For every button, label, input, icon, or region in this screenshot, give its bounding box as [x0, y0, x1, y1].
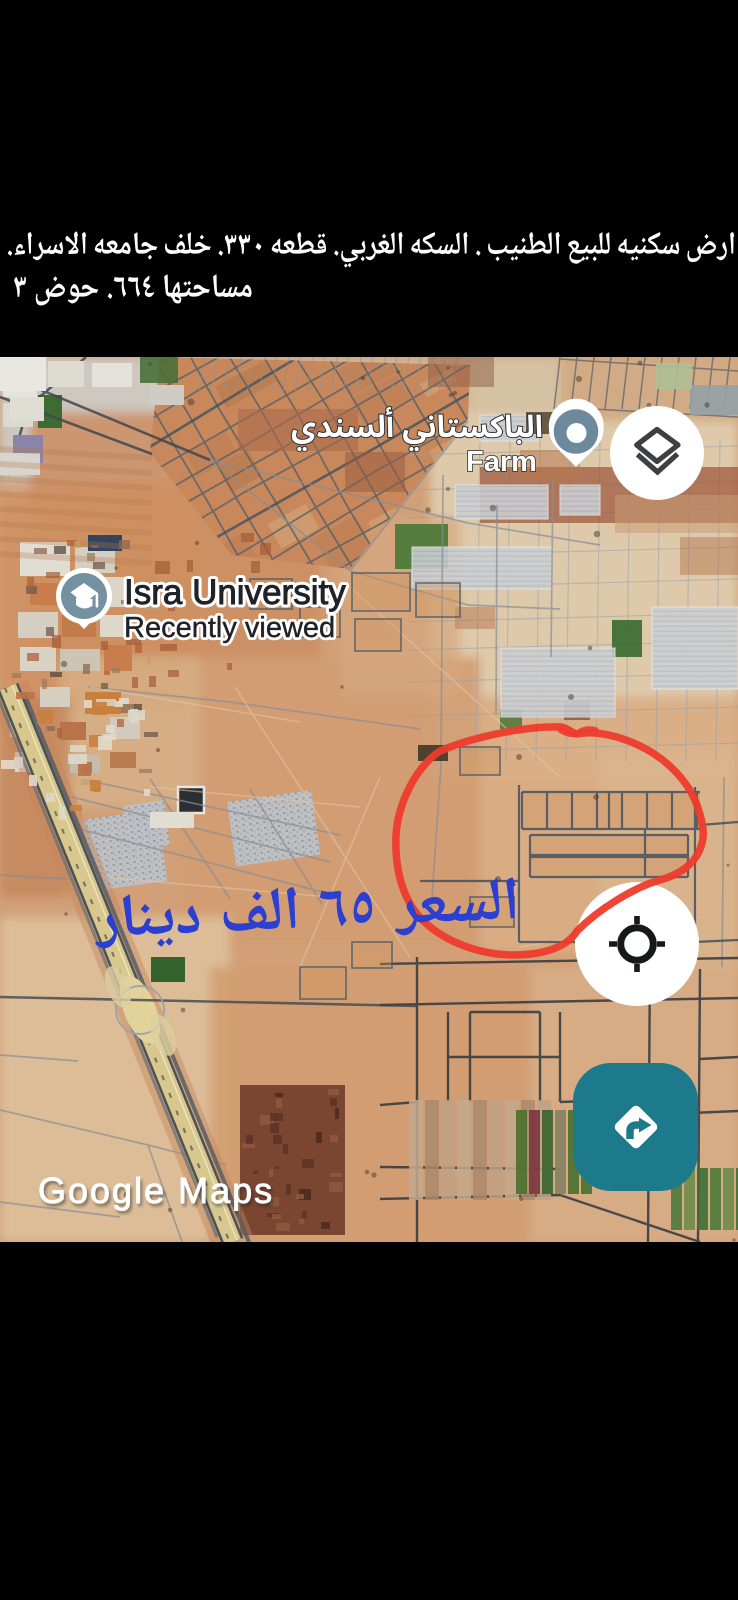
svg-text:Recently viewed: Recently viewed — [124, 612, 335, 644]
svg-text:Farm: Farm — [466, 446, 537, 478]
svg-text:Isra University: Isra University — [124, 573, 346, 612]
svg-text:Google Maps: Google Maps — [38, 1170, 274, 1211]
